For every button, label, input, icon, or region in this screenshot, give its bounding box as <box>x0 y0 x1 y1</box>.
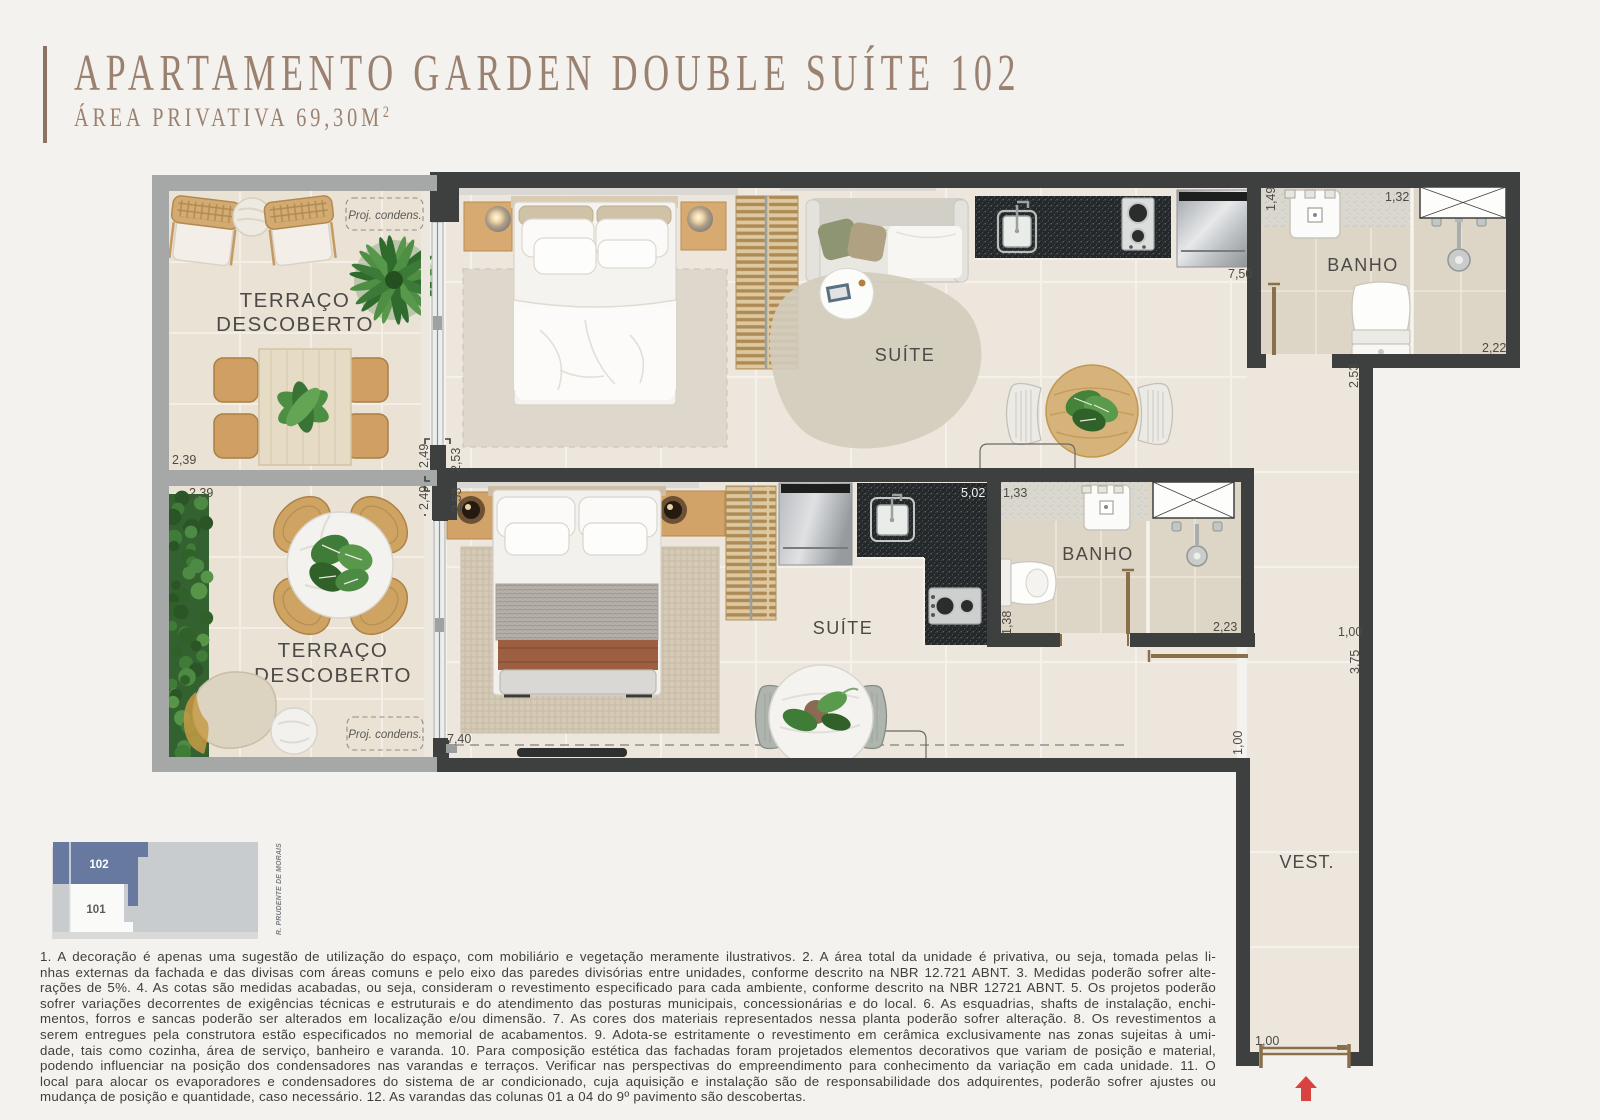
svg-text:2,53: 2,53 <box>449 448 463 472</box>
svg-text:3,75: 3,75 <box>1348 650 1362 674</box>
svg-text:1,00: 1,00 <box>1231 731 1245 755</box>
svg-text:1,33: 1,33 <box>1003 486 1027 500</box>
svg-text:DESCOBERTO: DESCOBERTO <box>254 664 412 687</box>
svg-text:7,40: 7,40 <box>447 732 471 746</box>
svg-text:1,00: 1,00 <box>1255 1034 1279 1048</box>
svg-text:BANHO: BANHO <box>1062 544 1134 564</box>
svg-text:2,53: 2,53 <box>1347 364 1361 388</box>
svg-text:TERRAÇO: TERRAÇO <box>240 289 351 312</box>
svg-text:2,23: 2,23 <box>1213 620 1237 634</box>
svg-text:102: 102 <box>89 859 108 871</box>
svg-text:2,53: 2,53 <box>450 488 464 512</box>
svg-text:SUÍTE: SUÍTE <box>813 618 874 638</box>
svg-text:Proj. condens.: Proj. condens. <box>348 210 422 222</box>
svg-text:1,00: 1,00 <box>1338 625 1362 639</box>
svg-text:2,49: 2,49 <box>417 486 431 510</box>
svg-text:R. PRUDENTE DE MORAIS: R. PRUDENTE DE MORAIS <box>276 843 283 935</box>
svg-text:5,02: 5,02 <box>961 486 985 500</box>
svg-text:VEST.: VEST. <box>1279 852 1334 872</box>
svg-text:TERRAÇO: TERRAÇO <box>278 639 389 662</box>
svg-text:1,32: 1,32 <box>1385 190 1409 204</box>
svg-text:BANHO: BANHO <box>1327 255 1399 275</box>
svg-text:2,22: 2,22 <box>1482 341 1506 355</box>
svg-text:DESCOBERTO: DESCOBERTO <box>216 313 374 336</box>
svg-text:101: 101 <box>86 904 106 916</box>
svg-text:2,39: 2,39 <box>172 453 196 467</box>
svg-text:2,39: 2,39 <box>189 486 213 500</box>
svg-text:1,49: 1,49 <box>1264 187 1278 211</box>
svg-text:7,50: 7,50 <box>1228 267 1252 281</box>
svg-text:SUÍTE: SUÍTE <box>875 345 936 365</box>
svg-text:2,49: 2,49 <box>417 444 431 468</box>
svg-text:1,38: 1,38 <box>1000 611 1014 635</box>
svg-text:Proj. condens.: Proj. condens. <box>348 729 422 741</box>
